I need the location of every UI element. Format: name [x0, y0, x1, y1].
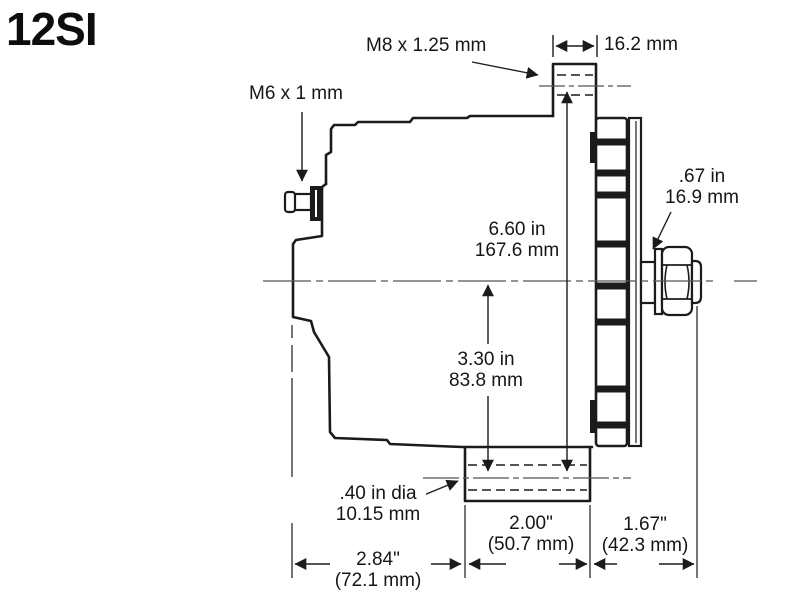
dim-foot-hole: .40 in dia 10.15 mm: [330, 483, 426, 525]
page-title: 12SI: [6, 2, 97, 56]
leader-m8: [472, 62, 538, 75]
dim-foot-length-in: 2.00": [483, 513, 579, 534]
label-m6-thread: M6 x 1 mm: [249, 83, 343, 104]
dim-foot-length: 2.00" (50.7 mm): [483, 513, 579, 555]
dim-foot-to-shaft-end: 1.67" (42.3 mm): [597, 514, 693, 556]
dim-overall-height-in: 6.60 in: [471, 219, 563, 240]
dim-center-height: 3.30 in 83.8 mm: [438, 349, 534, 391]
shaft: [641, 262, 655, 303]
m6-stud: [285, 186, 322, 221]
mounting-foot: [465, 447, 590, 501]
dim-foot-hole-in: .40 in dia: [330, 483, 426, 504]
shaft-end-cap: [692, 261, 701, 303]
dim-overall-height: 6.60 in 167.6 mm: [471, 219, 563, 261]
drawing-canvas: 12SI M8 x 1.25 mm 16.2 mm M6 x 1 mm .67 …: [0, 0, 800, 590]
dim-shaft-diameter-in: .67 in: [652, 166, 752, 187]
dim-foot-length-mm: (50.7 mm): [483, 534, 579, 555]
dim-foot-to-shaft-end-mm: (42.3 mm): [597, 535, 693, 556]
label-m8-thread: M8 x 1.25 mm: [366, 35, 486, 56]
body-outline: [293, 64, 596, 501]
leader-shaft: [653, 212, 671, 249]
dim-center-height-in: 3.30 in: [438, 349, 534, 370]
dim-body-to-foot-mm: (72.1 mm): [330, 570, 426, 591]
dim-foot-hole-mm: 10.15 mm: [330, 504, 426, 525]
mounting-ear: [553, 64, 596, 120]
dim-body-to-foot-in: 2.84": [330, 549, 426, 570]
hidden-lines: [468, 75, 593, 490]
dim-overall-height-mm: 167.6 mm: [471, 240, 563, 261]
pulley: [590, 118, 641, 446]
leader-foot-hole: [424, 481, 458, 495]
dim-shaft-diameter: .67 in 16.9 mm: [652, 166, 752, 208]
dim-body-to-foot: 2.84" (72.1 mm): [330, 549, 426, 591]
dim-center-height-mm: 83.8 mm: [438, 370, 534, 391]
dim-shaft-diameter-mm: 16.9 mm: [652, 187, 752, 208]
label-ear-width: 16.2 mm: [604, 34, 678, 55]
dim-foot-to-shaft-end-in: 1.67": [597, 514, 693, 535]
